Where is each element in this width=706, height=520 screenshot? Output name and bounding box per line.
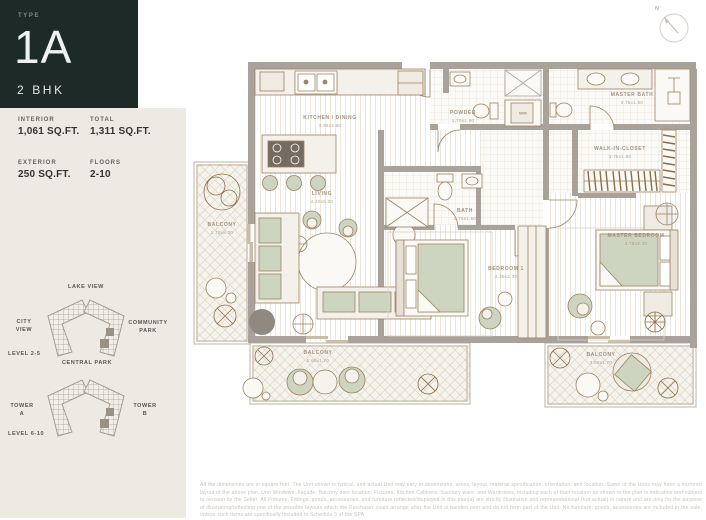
master-toilet-icon [550, 103, 572, 117]
stat-exterior: EXTERIOR 250 SQ.FT. [18, 160, 71, 180]
site-map-tower-b-label: TOWER B [132, 402, 158, 419]
shower-icon [386, 198, 428, 227]
bed-icon [396, 240, 468, 316]
powder-sink-icon [450, 72, 470, 86]
compass-north-label: N [655, 6, 659, 12]
plant-icon [645, 312, 665, 332]
room-label-bath: BATH 2.70x1.50 [454, 208, 476, 222]
floor-plan-brochure-page: { "type_card": { "label": "TYPE", "code"… [0, 0, 706, 518]
room-label-walk-in-closet: WALK-IN-CLOSET 3.75x1.80 [594, 146, 646, 160]
side-table-icon [249, 309, 275, 335]
unit-type-code: 1A [14, 20, 72, 74]
site-map-level-2-5 [38, 294, 134, 358]
wardrobe-icon [518, 226, 546, 338]
stat-interior: INTERIOR 1,061 SQ.FT. [18, 117, 79, 137]
site-map-lake-view-label: LAKE VIEW [68, 283, 104, 291]
site-map-level-2-5-label: LEVEL 2-5 [8, 350, 41, 358]
sink-icon [462, 174, 482, 188]
stat-floors: FLOORS 2-10 [90, 160, 121, 180]
coffee-table-icon [293, 314, 313, 334]
site-map-level-6-10-label: LEVEL 6-10 [8, 430, 44, 438]
room-label-balcony-left: BALCONY 1.70x8.30 [208, 222, 237, 236]
room-label-kitchen-dining: KITCHEN / DINING 3.95x2.80 [303, 115, 357, 129]
powder-toilet-icon [473, 103, 498, 119]
site-map-community-park-label: COMMUNITY PARK [122, 319, 174, 336]
bar-stools-icon [263, 176, 326, 191]
washer-label: WM [519, 111, 527, 116]
unit-type-subtitle: 2 BHK [17, 83, 65, 97]
site-map-city-view-label: CITY VIEW [9, 318, 39, 335]
site-map-level-6-10 [38, 374, 134, 438]
room-label-balcony-right: BALCONY 3.50x1.70 [587, 352, 616, 366]
double-vanity-icon [578, 69, 652, 89]
type-card: TYPE 1A 2 BHK [0, 0, 138, 108]
kitchen-counter-icon [255, 69, 425, 95]
type-label: TYPE [18, 13, 40, 19]
toilet-icon [437, 174, 453, 200]
room-label-living: LIVING 4.40x5.00 [311, 191, 333, 205]
room-label-powder: POWDER 1.70x1.50 [450, 110, 476, 124]
service-shaft-icon [505, 70, 541, 96]
site-map-central-park-label: CENTRAL PARK [62, 359, 112, 367]
room-label-bedroom-1: BEDROOM 1 4.30x3.30 [488, 266, 524, 280]
room-label-master-bedroom: MASTER BEDROOM 3.75x4.30 [607, 233, 664, 247]
kitchen-island-icon [262, 135, 336, 173]
master-shower-icon [655, 69, 690, 121]
ceiling-light-icon [656, 203, 678, 225]
room-label-master-bath: MASTER BATH 3.75x1.50 [611, 92, 654, 106]
room-label-balcony-bottom: BALCONY 5.60x1.70 [304, 350, 333, 364]
disclaimer-text: All the dimensions are in square feet. T… [200, 482, 702, 520]
stat-total: TOTAL 1,311 SQ.FT. [90, 117, 151, 137]
site-map-tower-a-label: TOWER A [9, 402, 35, 419]
